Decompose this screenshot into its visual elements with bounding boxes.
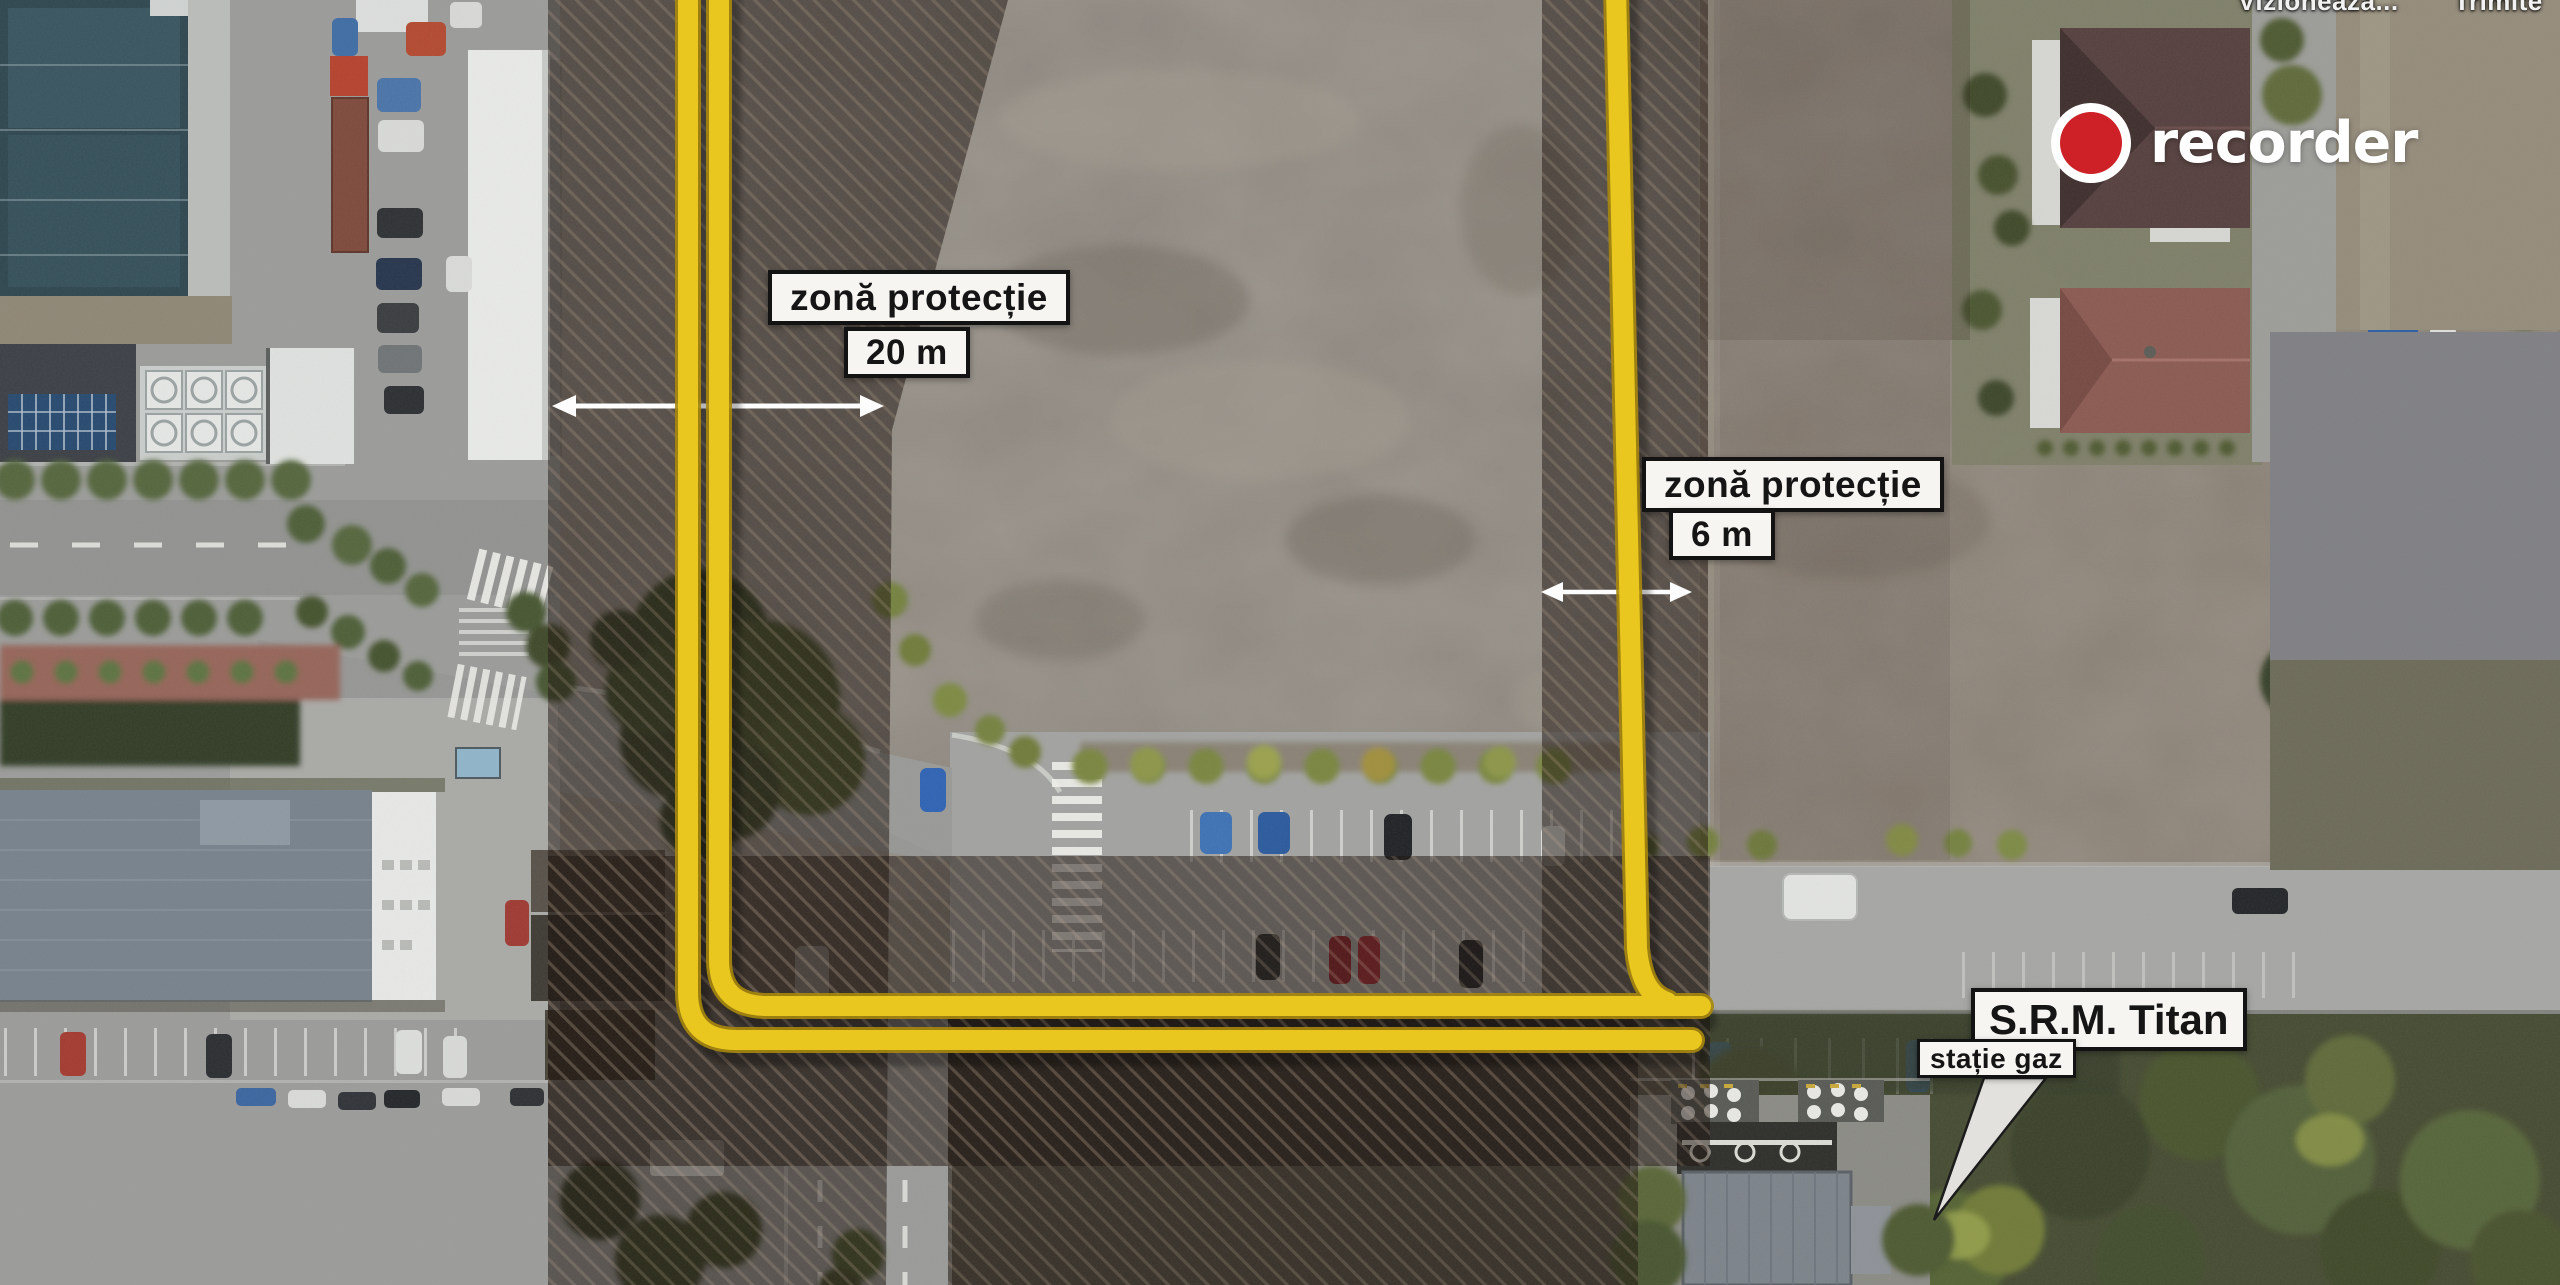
- watch-link[interactable]: Vizionează...: [2238, 0, 2399, 17]
- share-link[interactable]: Trimite: [2454, 0, 2543, 17]
- film-grain: [0, 0, 2560, 1285]
- recorder-logo-text: recorder: [2150, 110, 2417, 176]
- zone-6m-label: zonă protecție: [1642, 457, 1944, 512]
- recorder-logo-icon: [2048, 100, 2134, 186]
- recorder-watermark: recorder: [2048, 100, 2417, 186]
- statie-gaz-label: stație gaz: [1917, 1039, 2076, 1078]
- aerial-photo: [0, 0, 2560, 1285]
- video-frame: zonă protecție 20 m zonă protecție 6 m S…: [0, 0, 2560, 1285]
- zone-20m-label: zonă protecție: [768, 270, 1070, 325]
- zone-20m-value: 20 m: [844, 327, 970, 378]
- zone-6m-value: 6 m: [1669, 509, 1775, 560]
